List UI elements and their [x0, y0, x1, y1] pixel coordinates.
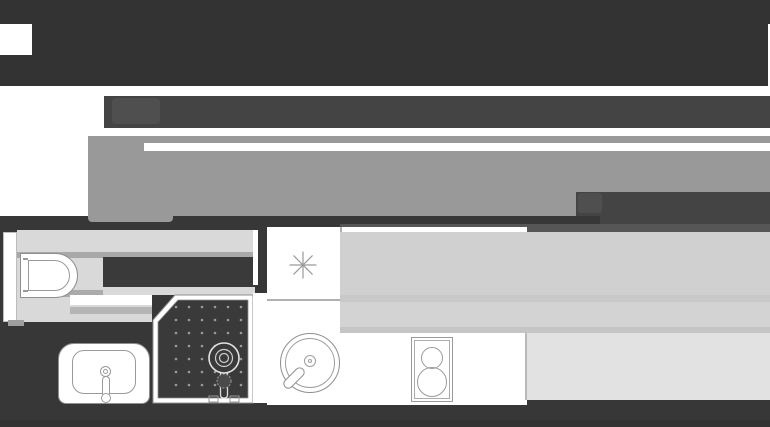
shower-dot — [227, 319, 230, 322]
shower-dot — [188, 345, 191, 348]
corner-shower — [148, 290, 258, 408]
bottom-strip — [0, 420, 770, 427]
shower-dot — [214, 332, 217, 335]
shower-dot — [175, 345, 178, 348]
shower-dot — [201, 306, 204, 309]
page-header — [0, 0, 770, 86]
watermark-logo-icon — [112, 98, 160, 124]
bathroom-dark-block — [103, 257, 255, 287]
bathroom-stripe — [70, 295, 152, 305]
shower-dot — [214, 384, 217, 387]
toilet-hinge — [23, 290, 28, 292]
shower-dot — [227, 332, 230, 335]
skeleton-title-bar — [88, 136, 770, 143]
shower-dot — [240, 306, 243, 309]
wall-cap — [8, 320, 24, 326]
shower-dot — [240, 371, 243, 374]
watermark-logo-icon — [578, 193, 602, 213]
shower-head — [209, 343, 239, 373]
bathroom-stripe — [70, 307, 152, 314]
shower-dot — [240, 345, 243, 348]
shower-dot — [201, 384, 204, 387]
nav-bar[interactable] — [104, 96, 770, 128]
appliance-star-icon — [289, 251, 317, 279]
shower-dot — [227, 306, 230, 309]
washbasin-faucet-knob — [101, 393, 111, 403]
shower-dot — [188, 332, 191, 335]
kitchen-counter-seam — [525, 333, 527, 400]
cooktop-burner-large — [417, 367, 447, 397]
shower-dot — [188, 358, 191, 361]
kitchen-sink-drain-dot — [308, 359, 312, 363]
shower-dot — [175, 332, 178, 335]
toilet-hinge — [23, 258, 28, 260]
toilet-bowl — [28, 260, 70, 291]
shower-dot — [240, 384, 243, 387]
wall-left — [3, 232, 17, 322]
shower-dot — [175, 358, 178, 361]
shower-dot — [175, 306, 178, 309]
hero-caption-block-ext — [600, 216, 770, 224]
wall-divider-lower — [253, 293, 267, 403]
shower-dot — [240, 358, 243, 361]
shower-dot — [188, 306, 191, 309]
hero-footer-tab — [88, 216, 173, 222]
shower-dot — [214, 319, 217, 322]
kitchen-counter-lower — [527, 333, 770, 400]
hero-caption-block — [576, 192, 770, 216]
shower-dot — [201, 332, 204, 335]
shower-dot — [175, 319, 178, 322]
kitchen-counter-block — [340, 232, 770, 295]
shower-dot — [188, 384, 191, 387]
shower-dot — [201, 345, 204, 348]
washbasin-drain-dot — [103, 369, 108, 374]
shower-dot — [201, 371, 204, 374]
shower-dot — [175, 371, 178, 374]
cooktop-burner-small — [421, 347, 443, 369]
shower-knob — [217, 374, 231, 388]
kitchen-counter-stripe — [340, 295, 770, 302]
shower-dot — [240, 319, 243, 322]
shower-dot — [188, 371, 191, 374]
shower-dot — [175, 384, 178, 387]
logo-placeholder[interactable] — [0, 24, 32, 55]
shower-dot — [214, 306, 217, 309]
shower-dot — [188, 319, 191, 322]
skeleton-title-connector — [88, 143, 144, 151]
shower-dot — [201, 319, 204, 322]
page — [0, 0, 770, 427]
shower-dot — [240, 332, 243, 335]
kitchen-cell-border — [267, 299, 342, 301]
kitchen-counter-block — [340, 302, 770, 327]
wall-divider-upper — [253, 230, 258, 285]
shower-dot — [201, 358, 204, 361]
